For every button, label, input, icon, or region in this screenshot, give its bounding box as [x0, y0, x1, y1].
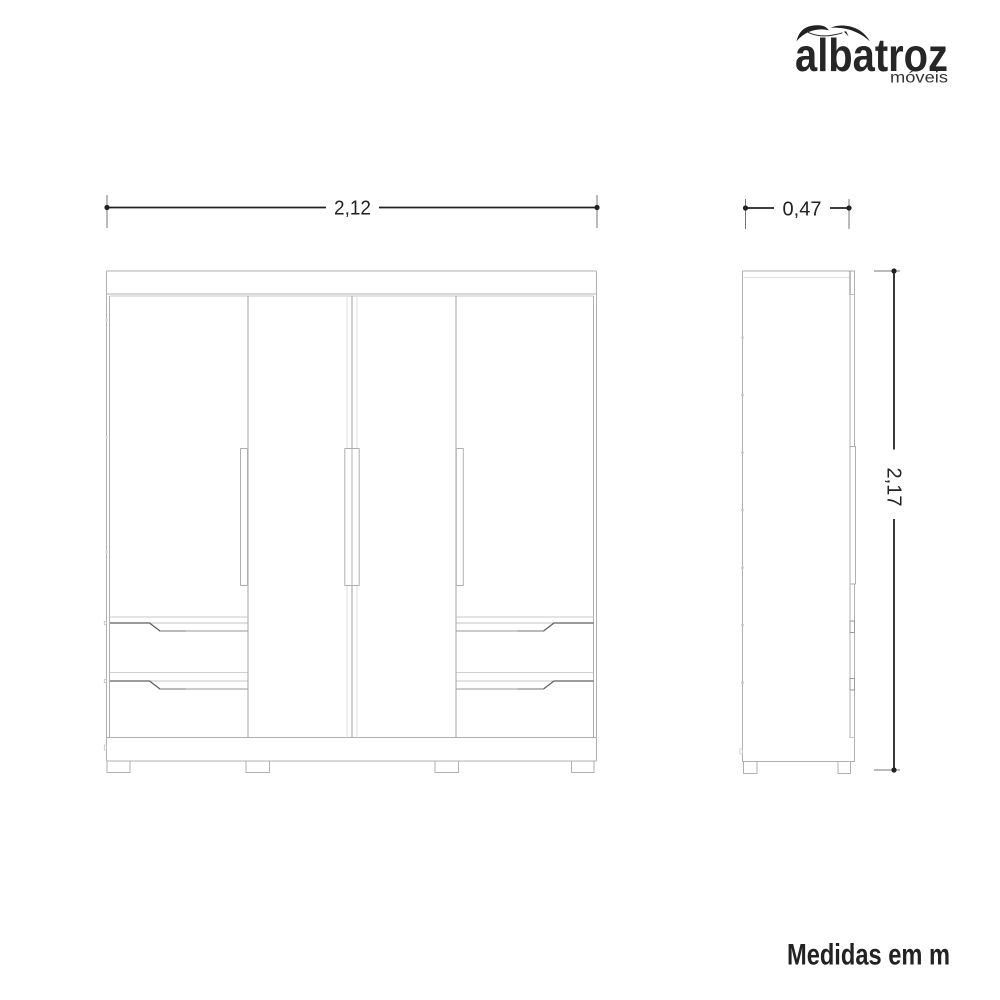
- svg-text:0,47: 0,47: [783, 199, 822, 221]
- svg-text:móveis: móveis: [890, 70, 948, 87]
- svg-text:2,12: 2,12: [334, 198, 371, 220]
- svg-text:2,17: 2,17: [883, 468, 905, 507]
- svg-text:Medidas em m: Medidas em m: [787, 939, 950, 972]
